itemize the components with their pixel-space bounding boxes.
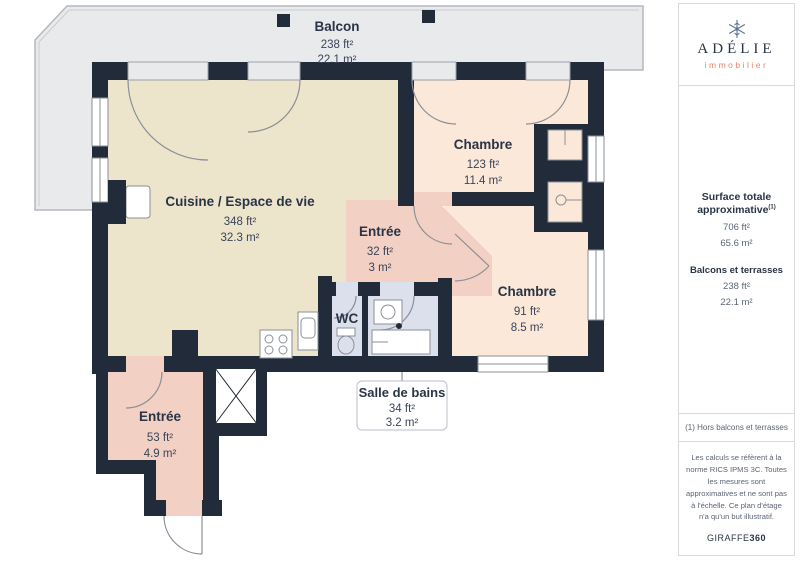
label-entree-milieu-ft: 32 ft²	[367, 246, 393, 258]
brand-name: ADÉLIE	[697, 41, 775, 58]
surface-total-label: Surface totale approximative(1)	[679, 191, 794, 217]
surface-total-text: Surface totale approximative	[697, 191, 771, 216]
info-sidebar: ADÉLIE immobilier Surface totale approxi…	[678, 3, 795, 556]
balcons-label: Balcons et terrasses	[690, 265, 783, 276]
surface-total-ft: 706 ft²	[723, 222, 750, 233]
label-chambre2-ft: 91 ft²	[514, 306, 540, 318]
label-entree-milieu: Entrée	[359, 224, 402, 239]
kitchen-sink-icon	[298, 312, 318, 350]
credit-bold: 360	[749, 533, 766, 543]
balcons-m: 22.1 m²	[720, 297, 752, 308]
label-cuisine: Cuisine / Espace de vie	[165, 194, 315, 209]
surface-total-m: 65.6 m²	[720, 238, 752, 249]
closet-niche	[548, 130, 582, 160]
label-chambre1: Chambre	[454, 137, 513, 152]
label-cuisine-ft: 348 ft²	[224, 216, 257, 228]
brand-tagline: immobilier	[705, 60, 769, 70]
balcony-pillar	[277, 14, 290, 27]
label-chambre1-m: 11.4 m²	[464, 175, 502, 187]
label-salle-de-bains: Salle de bains	[359, 385, 446, 400]
snowflake-logo-icon	[727, 19, 747, 39]
label-cuisine-m: 32.3 m²	[221, 232, 260, 244]
label-chambre2: Chambre	[498, 284, 557, 299]
label-entree-bas-m: 4.9 m²	[144, 448, 177, 460]
legal-block: Les calculs se réfèrent à la norme RICS …	[679, 441, 794, 555]
giraffe360-credit: GIRAFFE360	[686, 532, 787, 546]
credit-regular: GIRAFFE	[707, 533, 750, 543]
floorplan-page: Balcon 238 ft² 22.1 m² Cuisine / Espace …	[0, 0, 800, 566]
basin-niche	[548, 182, 582, 222]
label-balcon: Balcon	[314, 19, 359, 34]
balcons-ft: 238 ft²	[723, 281, 750, 292]
surface-summary: Surface totale approximative(1) 706 ft² …	[679, 86, 794, 413]
footnote: (1) Hors balcons et terrasses	[679, 413, 794, 441]
stove-icon	[260, 330, 292, 358]
surface-total-footnote-ref: (1)	[768, 205, 775, 211]
radiator-icon	[126, 186, 150, 218]
label-balcon-ft: 238 ft²	[321, 39, 354, 51]
balcony-pillar	[422, 10, 435, 23]
label-chambre1-ft: 123 ft²	[467, 159, 500, 171]
label-entree-bas-ft: 53 ft²	[147, 432, 173, 444]
brand-block: ADÉLIE immobilier	[679, 4, 794, 86]
legal-text: Les calculs se réfèrent à la norme RICS …	[686, 452, 787, 523]
label-entree-milieu-m: 3 m²	[369, 262, 392, 274]
label-wc: WC	[336, 311, 359, 326]
label-salle-de-bains-m: 3.2 m²	[386, 417, 419, 429]
label-salle-de-bains-ft: 34 ft²	[389, 403, 415, 415]
room-entree-bas-floor	[156, 460, 205, 502]
label-chambre2-m: 8.5 m²	[511, 322, 544, 334]
label-entree-bas: Entrée	[139, 409, 182, 424]
label-balcon-m: 22.1 m²	[318, 54, 357, 66]
